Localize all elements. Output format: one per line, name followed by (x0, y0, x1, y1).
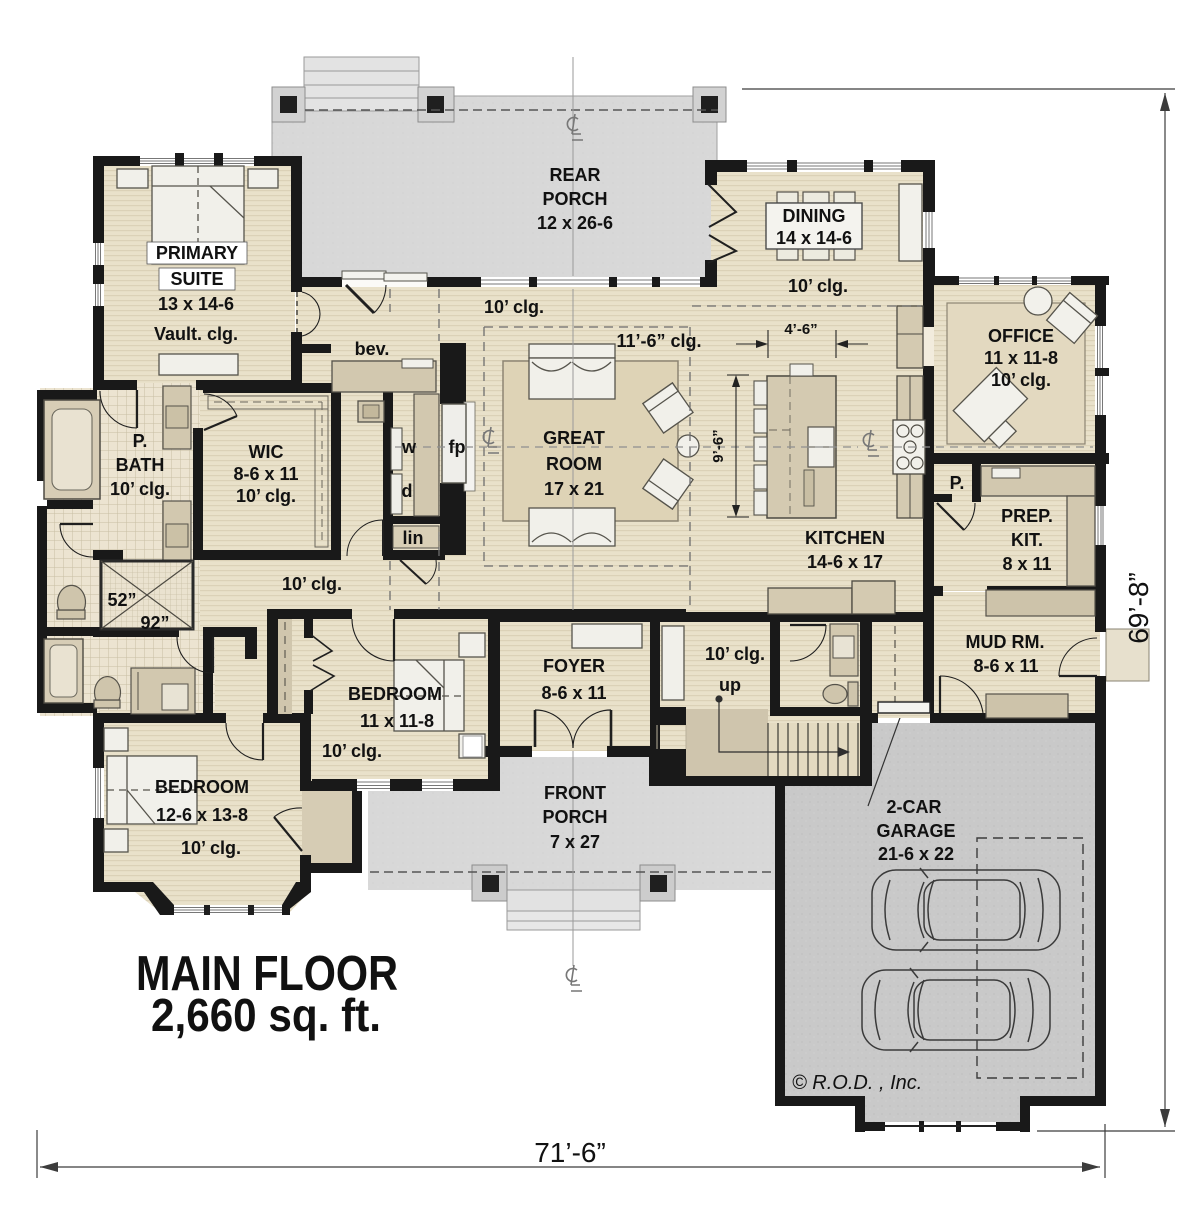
svg-text:69’-8”: 69’-8” (1123, 572, 1154, 644)
svg-text:PORCH: PORCH (542, 807, 607, 827)
svg-text:KITCHEN: KITCHEN (805, 528, 885, 548)
svg-text:7 x 27: 7 x 27 (550, 832, 600, 852)
svg-text:GREAT: GREAT (543, 428, 605, 448)
svg-text:d: d (402, 481, 413, 501)
svg-text:KIT.: KIT. (1011, 530, 1043, 550)
svg-text:bev.: bev. (355, 339, 390, 359)
svg-text:DINING: DINING (783, 206, 846, 226)
svg-text:2-CAR: 2-CAR (886, 797, 941, 817)
svg-text:14-6 x 17: 14-6 x 17 (807, 552, 883, 572)
svg-text:fp: fp (449, 437, 466, 457)
svg-text:11’-6” clg.: 11’-6” clg. (616, 331, 701, 351)
svg-text:WIC: WIC (249, 442, 284, 462)
svg-text:12-6 x 13-8: 12-6 x 13-8 (156, 805, 248, 825)
svg-text:10’ clg.: 10’ clg. (991, 370, 1051, 390)
svg-text:PRIMARY: PRIMARY (156, 243, 238, 263)
svg-text:w: w (401, 437, 417, 457)
svg-text:MUD RM.: MUD RM. (966, 632, 1045, 652)
svg-text:9’-6”: 9’-6” (710, 429, 727, 462)
svg-text:8-6 x 11: 8-6 x 11 (973, 656, 1038, 676)
svg-text:10’ clg.: 10’ clg. (788, 276, 848, 296)
svg-text:13 x 14-6: 13 x 14-6 (158, 294, 234, 314)
svg-text:10’ clg.: 10’ clg. (282, 574, 342, 594)
svg-text:52”: 52” (107, 590, 136, 610)
svg-text:8-6 x 11: 8-6 x 11 (233, 464, 298, 484)
svg-text:FOYER: FOYER (543, 656, 605, 676)
svg-text:Vault. clg.: Vault. clg. (154, 324, 238, 344)
svg-text:8-6 x 11: 8-6 x 11 (541, 683, 606, 703)
svg-text:10’ clg.: 10’ clg. (705, 644, 765, 664)
svg-text:OFFICE: OFFICE (988, 326, 1054, 346)
svg-text:P.: P. (950, 473, 965, 493)
svg-text:SUITE: SUITE (170, 269, 223, 289)
svg-text:14 x 14-6: 14 x 14-6 (776, 228, 852, 248)
svg-text:© R.O.D. , Inc.: © R.O.D. , Inc. (792, 1072, 922, 1094)
svg-text:21-6 x 22: 21-6 x 22 (878, 844, 954, 864)
svg-text:PORCH: PORCH (542, 189, 607, 209)
svg-text:8 x 11: 8 x 11 (1002, 554, 1051, 574)
svg-text:71’-6”: 71’-6” (534, 1137, 606, 1168)
svg-text:BEDROOM: BEDROOM (155, 777, 249, 797)
svg-text:FRONT: FRONT (544, 783, 606, 803)
svg-text:10’ clg.: 10’ clg. (322, 741, 382, 761)
svg-text:10’ clg.: 10’ clg. (484, 297, 544, 317)
svg-text:4’-6”: 4’-6” (784, 321, 817, 338)
svg-text:11 x 11-8: 11 x 11-8 (984, 348, 1058, 368)
svg-text:12 x 26-6: 12 x 26-6 (537, 213, 613, 233)
svg-text:17 x 21: 17 x 21 (544, 479, 604, 499)
svg-text:10’ clg.: 10’ clg. (110, 479, 170, 499)
svg-text:ROOM: ROOM (546, 454, 602, 474)
svg-text:P.: P. (133, 431, 148, 451)
svg-text:10’ clg.: 10’ clg. (181, 838, 241, 858)
svg-text:11 x 11-8: 11 x 11-8 (360, 711, 434, 731)
svg-text:GARAGE: GARAGE (876, 821, 955, 841)
svg-text:2,660 sq. ft.: 2,660 sq. ft. (151, 989, 381, 1041)
svg-text:BATH: BATH (116, 455, 165, 475)
svg-text:PREP.: PREP. (1001, 506, 1053, 526)
svg-text:92”: 92” (140, 613, 169, 633)
svg-text:BEDROOM: BEDROOM (348, 684, 442, 704)
svg-text:up: up (719, 675, 741, 695)
svg-text:lin: lin (403, 528, 424, 548)
svg-text:REAR: REAR (549, 165, 600, 185)
svg-text:10’ clg.: 10’ clg. (236, 486, 296, 506)
